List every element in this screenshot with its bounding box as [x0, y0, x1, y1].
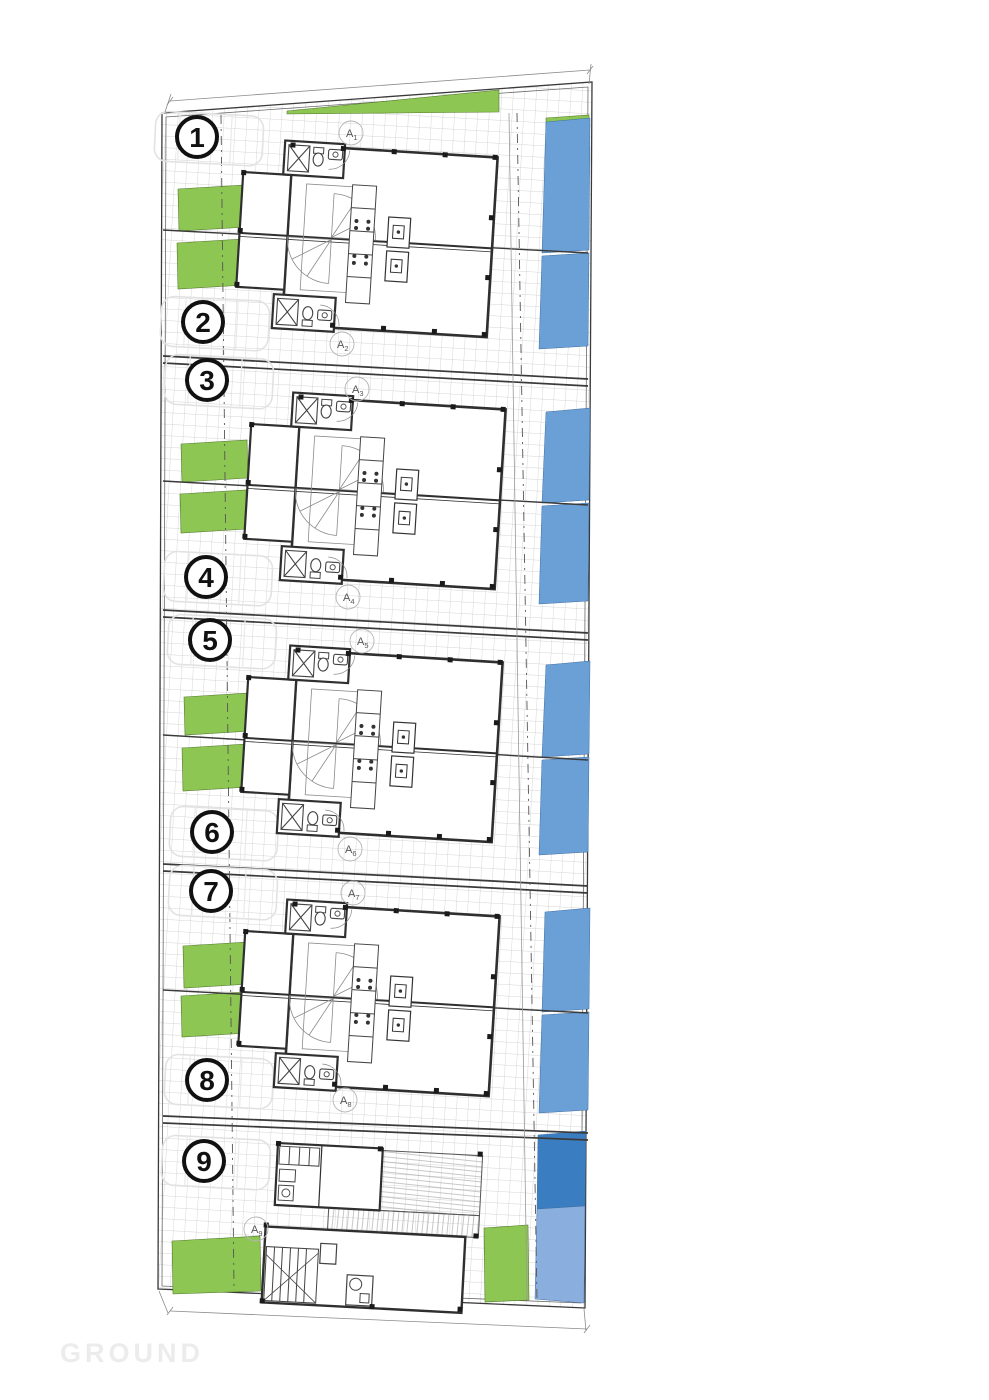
- pool-plot-1: [542, 118, 590, 253]
- plot-number-5: 5: [190, 620, 230, 660]
- pool-plot-9-light: [535, 1206, 585, 1303]
- parking-plot-6: [182, 744, 249, 791]
- parking-plot-8: [181, 992, 248, 1037]
- svg-text:9: 9: [196, 1146, 212, 1177]
- pool-plot-3: [542, 408, 590, 503]
- plot-number-3: 3: [187, 360, 227, 400]
- plot-number-4: 4: [186, 557, 226, 597]
- building-unit-a9: [260, 1140, 483, 1314]
- svg-text:2: 2: [195, 307, 211, 338]
- plot-number-9: 9: [184, 1141, 224, 1181]
- parking-plot-5: [184, 693, 251, 735]
- garden-plot-9-left: [172, 1236, 261, 1294]
- pool-plot-4: [539, 503, 589, 604]
- parking-plot-4: [180, 490, 247, 533]
- pool-plot-9-dark: [537, 1131, 586, 1209]
- svg-text:1: 1: [189, 122, 205, 153]
- svg-text:6: 6: [204, 817, 220, 848]
- garden-plot-9-right: [484, 1225, 529, 1302]
- parking-plot-1: [178, 185, 247, 231]
- svg-text:8: 8: [199, 1065, 215, 1096]
- svg-text:3: 3: [199, 365, 215, 396]
- site-plan-page: A1 A2 A3 A4 A5 A6 A7 A8: [0, 0, 989, 1400]
- svg-text:4: 4: [198, 562, 214, 593]
- ground-floor-site-plan: A1 A2 A3 A4 A5 A6 A7 A8: [0, 0, 989, 1400]
- parking-plot-3: [181, 440, 248, 482]
- plot-number-1: 1: [177, 117, 217, 157]
- svg-text:7: 7: [203, 876, 219, 907]
- parking-plot-2: [177, 239, 245, 289]
- parking-plot-7: [183, 942, 250, 988]
- pool-plot-2: [539, 253, 589, 349]
- plot-number-7: 7: [191, 871, 231, 911]
- pool-plot-6: [539, 757, 589, 855]
- plot-number-8: 8: [187, 1060, 227, 1100]
- pool-plot-5: [542, 661, 590, 757]
- svg-text:5: 5: [202, 625, 218, 656]
- floor-label: GROUND: [60, 1338, 204, 1368]
- pool-plot-8: [539, 1012, 589, 1113]
- pool-plot-7: [542, 908, 590, 1012]
- plot-number-2: 2: [183, 302, 223, 342]
- plot-number-6: 6: [192, 812, 232, 852]
